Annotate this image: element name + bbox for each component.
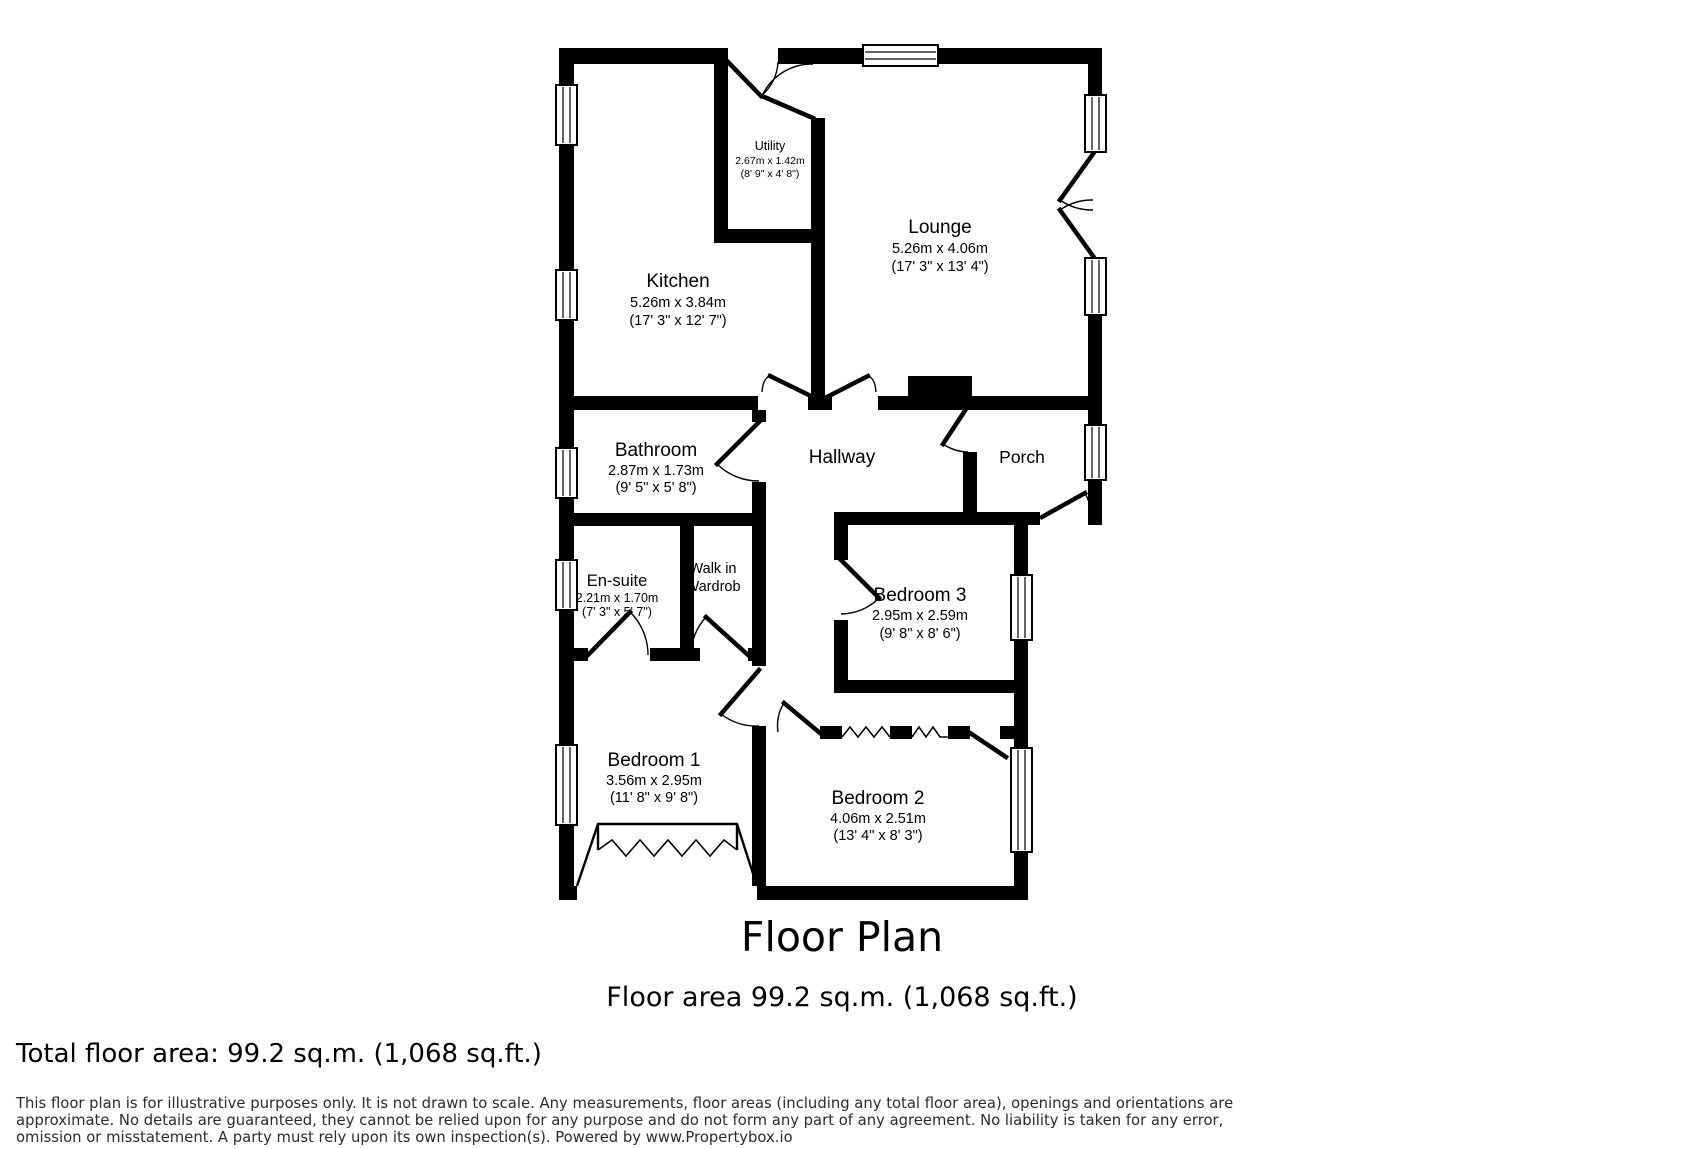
door-utility-exterior — [728, 62, 778, 96]
door-lounge — [825, 376, 876, 398]
svg-text:(9' 8" x 8' 6"): (9' 8" x 8' 6") — [879, 626, 960, 642]
room-label-bathroom: Bathroom 2.87m x 1.73m (9' 5" x 5' 8") — [608, 440, 704, 496]
window-bedroom1 — [556, 745, 577, 825]
disclaimer: This floor plan is for illustrative purp… — [15, 1095, 1233, 1146]
window-lounge-lower — [1085, 258, 1106, 315]
svg-text:En-suite: En-suite — [587, 572, 648, 590]
door-utility-lounge — [762, 64, 813, 118]
window-lounge-top — [863, 45, 938, 66]
disclaimer-line-3: omission or misstatement. A party must r… — [16, 1129, 793, 1146]
total-floor-area: Total floor area: 99.2 sq.m. (1,068 sq.f… — [15, 1039, 542, 1069]
door-porch-inner — [943, 406, 968, 452]
svg-text:(17' 3" x 13' 4"): (17' 3" x 13' 4") — [891, 259, 988, 275]
window-lounge-upper — [1085, 95, 1106, 152]
window-porch — [1085, 425, 1106, 480]
svg-text:Lounge: Lounge — [908, 217, 971, 238]
svg-text:2.87m x 1.73m: 2.87m x 1.73m — [608, 463, 704, 479]
svg-text:2.95m x 2.59m: 2.95m x 2.59m — [872, 608, 968, 624]
window-bedroom3 — [1011, 575, 1032, 640]
svg-text:Utility: Utility — [755, 139, 786, 153]
window-bedroom2 — [1011, 748, 1032, 852]
door-bedroom1 — [721, 670, 759, 726]
door-kitchen — [762, 376, 815, 398]
svg-text:Kitchen: Kitchen — [646, 271, 709, 292]
door-bedroom2-left — [778, 703, 820, 733]
room-label-kitchen: Kitchen 5.26m x 3.84m (17' 3" x 12' 7") — [629, 271, 726, 329]
svg-text:5.26m x 4.06m: 5.26m x 4.06m — [892, 241, 988, 257]
floor-area-subtitle: Floor area 99.2 sq.m. (1,068 sq.ft.) — [606, 982, 1077, 1013]
svg-text:Bedroom 3: Bedroom 3 — [874, 585, 967, 606]
fireplace — [908, 376, 972, 396]
svg-text:Bathroom: Bathroom — [615, 440, 697, 461]
room-label-bedroom3: Bedroom 3 2.95m x 2.59m (9' 8" x 8' 6") — [872, 585, 968, 642]
svg-text:Walk in: Walk in — [690, 561, 737, 577]
svg-text:Wardrob: Wardrob — [685, 579, 740, 595]
door-lounge-french — [1060, 154, 1093, 256]
room-label-porch: Porch — [999, 447, 1045, 467]
room-label-bedroom2: Bedroom 2 4.06m x 2.51m (13' 4" x 8' 3") — [830, 788, 926, 844]
svg-text:2.67m x 1.42m: 2.67m x 1.42m — [735, 155, 805, 167]
window-kitchen-upper — [556, 85, 577, 145]
svg-text:2.21m x 1.70m: 2.21m x 1.70m — [576, 591, 659, 605]
room-label-bedroom1: Bedroom 1 3.56m x 2.95m (11' 8" x 9' 8") — [606, 750, 702, 806]
svg-text:5.26m x 3.84m: 5.26m x 3.84m — [630, 295, 726, 311]
svg-text:(17' 3" x 12' 7"): (17' 3" x 12' 7") — [629, 313, 726, 329]
door-bathroom — [717, 422, 759, 481]
svg-text:(9' 5" x 5' 8"): (9' 5" x 5' 8") — [615, 480, 696, 496]
floor-plan-canvas: Utility 2.67m x 1.42m (8' 9" x 4' 8") Lo… — [0, 0, 1681, 1149]
svg-text:Hallway: Hallway — [809, 447, 876, 468]
room-label-hallway: Hallway — [809, 447, 876, 468]
svg-text:(13' 4" x 8' 3"): (13' 4" x 8' 3") — [833, 828, 922, 844]
svg-text:4.06m x 2.51m: 4.06m x 2.51m — [830, 811, 926, 827]
svg-text:Bedroom 2: Bedroom 2 — [832, 788, 925, 809]
page-title: Floor Plan — [741, 913, 943, 961]
disclaimer-line-1: This floor plan is for illustrative purp… — [15, 1095, 1233, 1112]
floor-plan-page: Utility 2.67m x 1.42m (8' 9" x 4' 8") Lo… — [0, 0, 1681, 1149]
door-porch-exterior — [1042, 493, 1091, 517]
svg-text:3.56m x 2.95m: 3.56m x 2.95m — [606, 773, 702, 789]
window-ensuite — [556, 560, 577, 610]
svg-text:Porch: Porch — [999, 447, 1045, 467]
window-bathroom — [556, 448, 577, 498]
disclaimer-line-2: approximate. No details are guaranteed, … — [16, 1112, 1223, 1129]
svg-text:(11' 8" x 9' 8"): (11' 8" x 9' 8") — [610, 790, 698, 806]
bay-window-bedroom1 — [577, 824, 757, 886]
room-label-lounge: Lounge 5.26m x 4.06m (17' 3" x 13' 4") — [891, 217, 988, 275]
room-label-ensuite: En-suite 2.21m x 1.70m (7' 3" x 5' 7") — [576, 572, 659, 619]
window-kitchen-lower — [556, 270, 577, 320]
svg-text:(8' 9" x 4' 8"): (8' 9" x 4' 8") — [741, 168, 800, 180]
room-label-utility: Utility 2.67m x 1.42m (8' 9" x 4' 8") — [735, 139, 805, 180]
svg-text:Bedroom 1: Bedroom 1 — [608, 750, 701, 771]
svg-text:(7' 3" x 5' 7"): (7' 3" x 5' 7") — [582, 605, 652, 619]
